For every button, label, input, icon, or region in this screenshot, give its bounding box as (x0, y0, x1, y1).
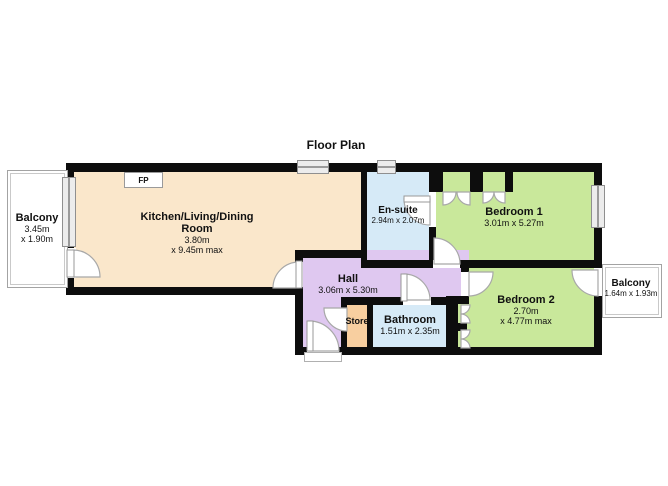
window-bedroom1-right (591, 185, 605, 228)
door-gap-kitchen-hall (295, 262, 303, 287)
wall-kitchen-bottom (66, 287, 303, 295)
bedroom1-dims: 3.01m x 5.27m (484, 218, 544, 228)
bedroom2-label: Bedroom 2 2.70m x 4.77m max (497, 294, 554, 326)
hall-name: Hall (318, 273, 378, 285)
hall-dims: 3.06m x 5.30m (318, 285, 378, 295)
store-label: Store (345, 316, 368, 326)
bathroom-dims: 1.51m x 2.35m (380, 326, 440, 336)
wall-kitchen-hall-horizontal (295, 250, 367, 258)
bathroom-name: Bathroom (380, 314, 440, 326)
door-gap-hall-bedroom1 (433, 260, 460, 268)
balcony-left-dim2: x 1.90m (16, 234, 59, 244)
bedroom1-name: Bedroom 1 (484, 206, 544, 218)
balcony-right-name: Balcony (605, 278, 658, 289)
door-gap-bedroom1-ensuite (429, 192, 436, 227)
ensuite-dims: 2.94m x 2.07m (372, 216, 425, 225)
window-kitchen-left (62, 177, 76, 247)
closet-mid-stub (456, 323, 467, 331)
door-gap-hall-bathroom (403, 297, 431, 305)
kitchen-dim2: x 9.45m max (140, 245, 253, 255)
bedroom2-dim1: 2.70m (497, 306, 554, 316)
wall-ensuite-bottom (361, 260, 433, 268)
wall-hall-left (295, 287, 303, 355)
bathroom-label: Bathroom 1.51m x 2.35m (380, 314, 440, 336)
wall-store-bathroom (367, 297, 373, 355)
bedroom2-dim2: x 4.77m max (497, 316, 554, 326)
bedroom1-label: Bedroom 1 3.01m x 5.27m (484, 206, 544, 228)
kitchen-name-line2: Room (140, 223, 253, 235)
ensuite-label: En-suite 2.94m x 2.07m (372, 205, 425, 225)
balcony-left-name: Balcony (16, 212, 59, 224)
balcony-left-dim1: 3.45m (16, 224, 59, 234)
wall-kitchen-ensuite (361, 163, 367, 260)
wardrobe-stub-b (470, 172, 483, 192)
wardrobe-stub-a (429, 172, 443, 192)
wall-bathroom-top-right (431, 297, 454, 305)
door-gap-bedroom2-balcony (594, 268, 602, 296)
balcony-left-label: Balcony 3.45m x 1.90m (16, 212, 59, 244)
fireplace-label: FP (138, 176, 148, 185)
kitchen-dim1: 3.80m (140, 235, 253, 245)
balcony-right-label: Balcony 1.64m x 1.93m (605, 278, 658, 298)
kitchen-name-line1: Kitchen/Living/Dining (140, 211, 253, 223)
door-gap-hall-bedroom2 (461, 272, 469, 296)
front-door-threshold (304, 352, 342, 362)
wall-bedroom1-bottom (460, 260, 602, 268)
wall-top (66, 163, 602, 172)
hall-label: Hall 3.06m x 5.30m (318, 273, 378, 295)
window-ensuite-top (377, 160, 396, 174)
fireplace-box: FP (124, 172, 163, 188)
ensuite-name: En-suite (372, 205, 425, 216)
wall-bottom-main (339, 347, 602, 355)
balcony-right-dims: 1.64m x 1.93m (605, 289, 658, 298)
page-title: Floor Plan (307, 138, 366, 152)
window-kitchen-top (297, 160, 329, 174)
store-name: Store (345, 316, 368, 326)
wardrobe-stub-c (505, 172, 513, 192)
bedroom2-name: Bedroom 2 (497, 294, 554, 306)
kitchen-label: Kitchen/Living/Dining Room 3.80m x 9.45m… (140, 211, 253, 255)
floor-plan-canvas: Floor Plan FP (0, 0, 668, 486)
